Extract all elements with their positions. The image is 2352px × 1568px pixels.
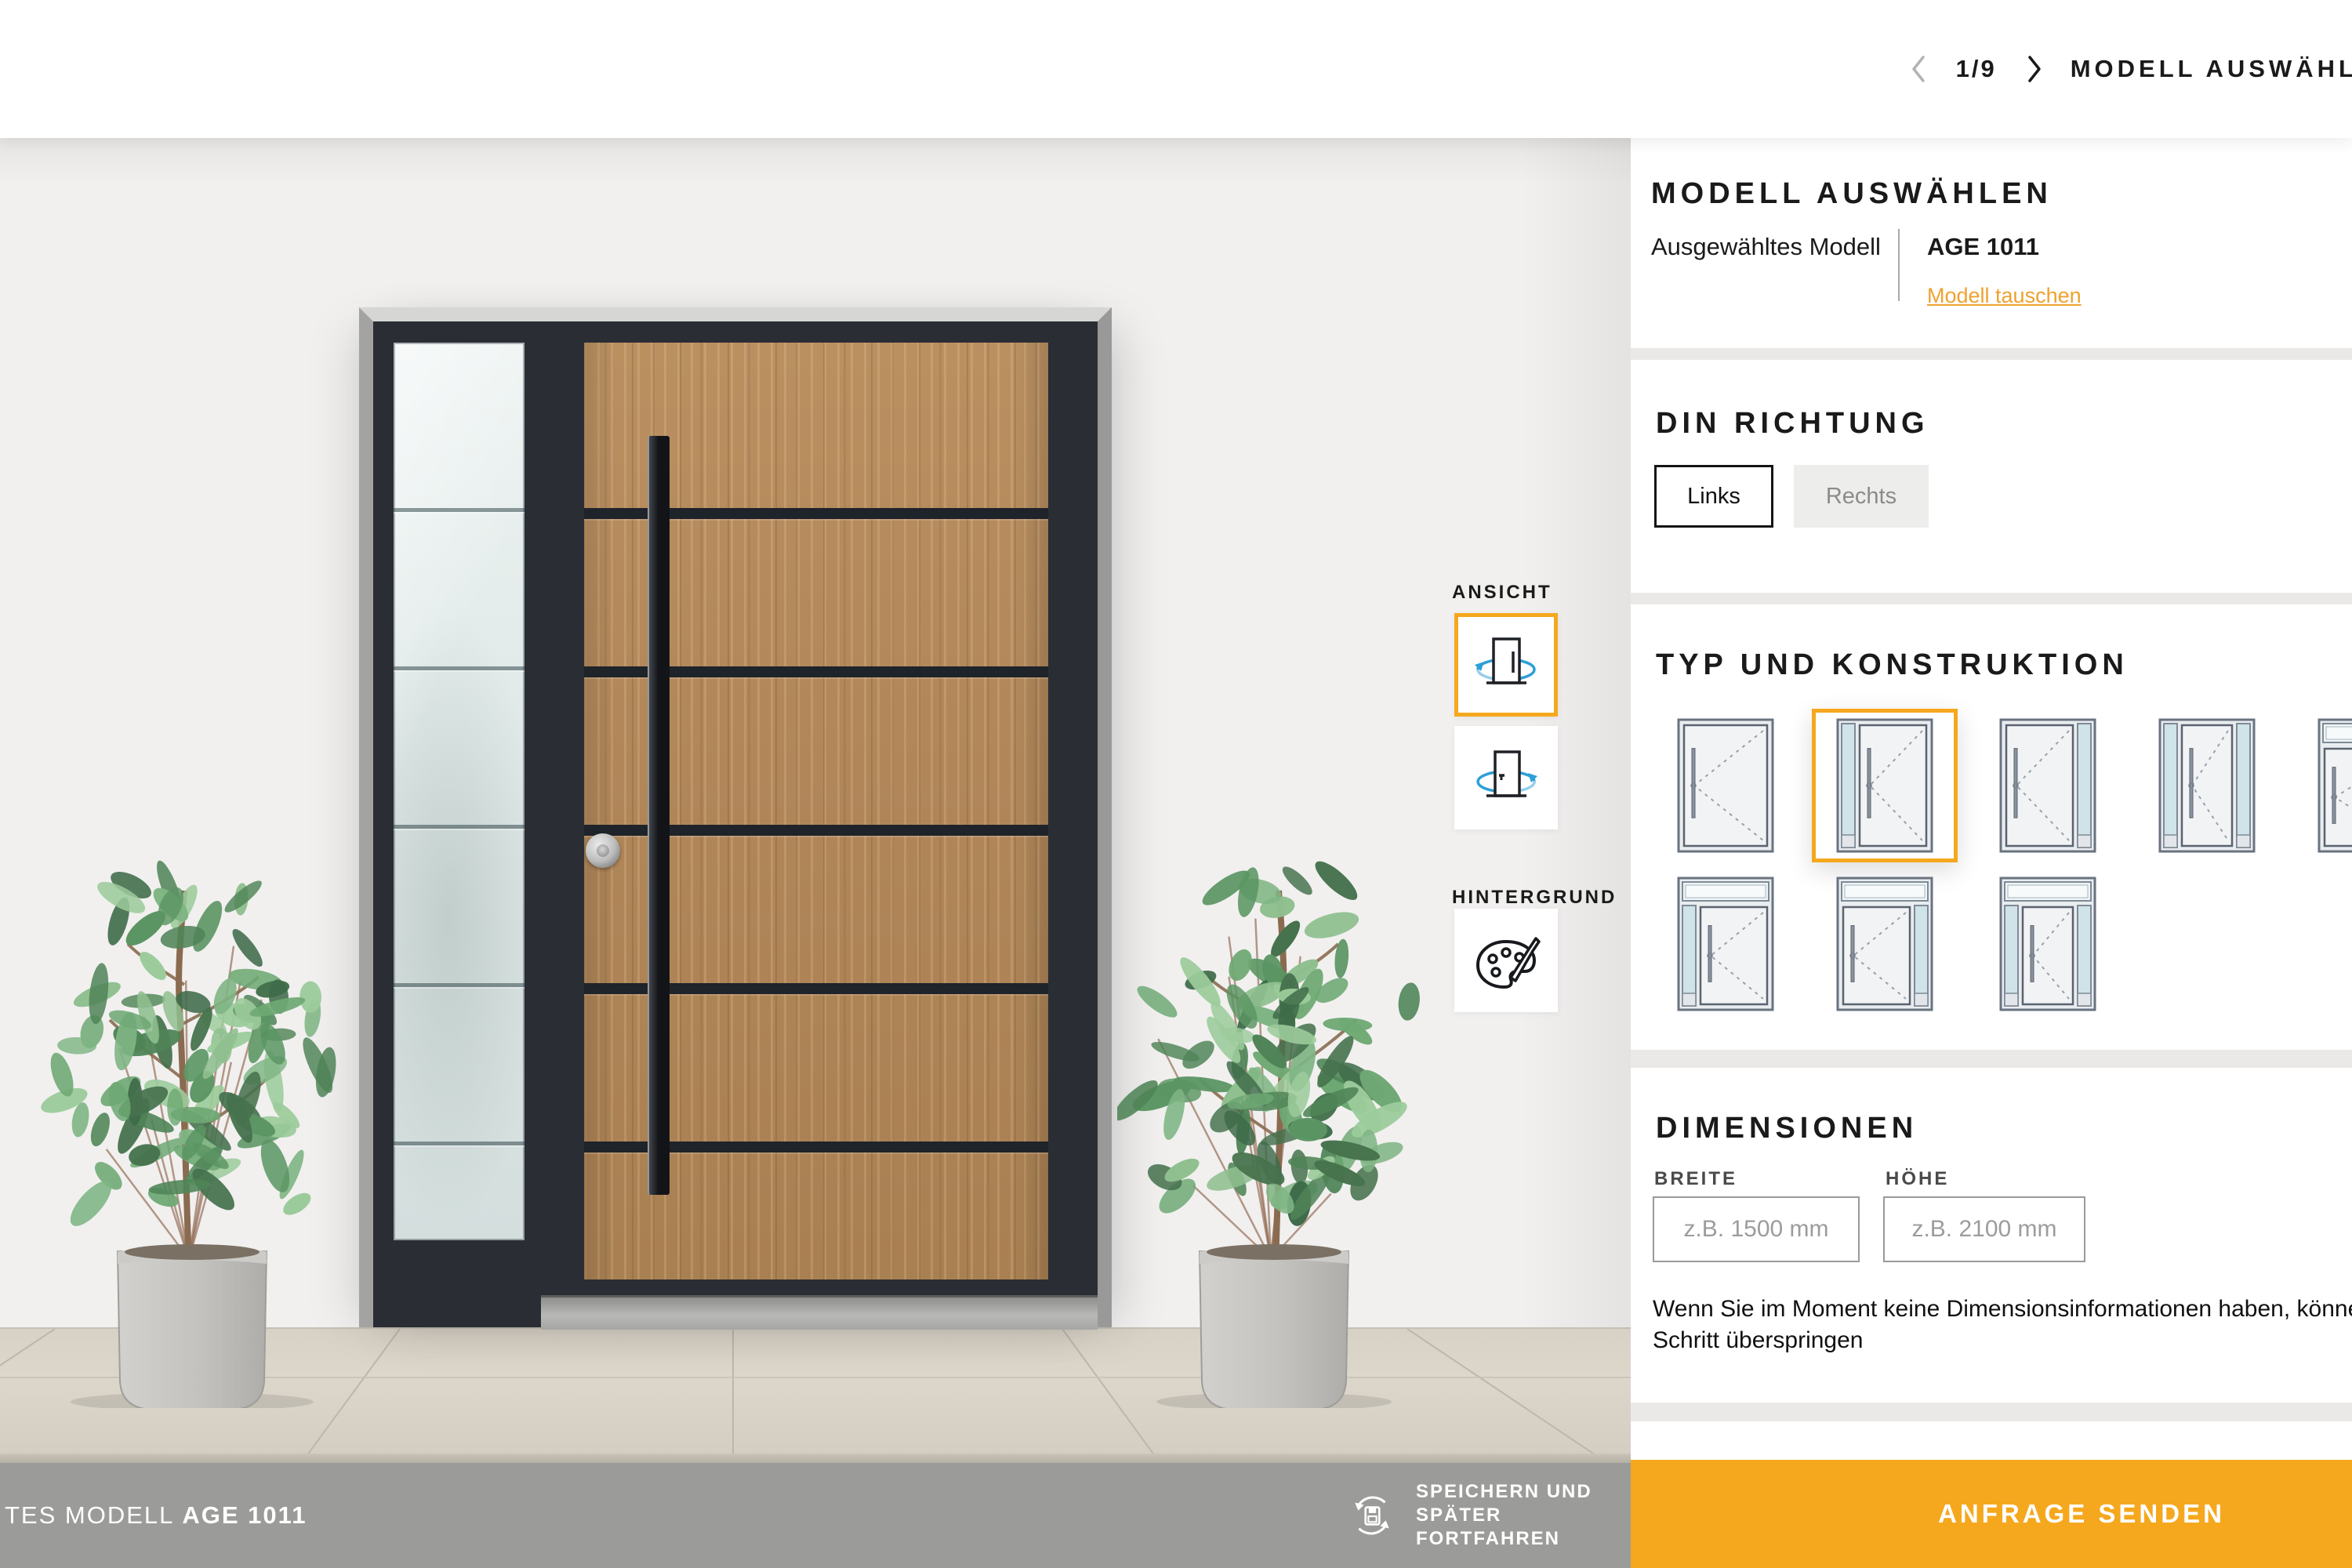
door-type-door-sidelight-right[interactable] — [1999, 718, 2096, 857]
height-label: HÖHE — [1886, 1168, 1949, 1190]
sidelight-mullion — [394, 666, 524, 670]
view-inside-button[interactable] — [1454, 726, 1558, 829]
view-outside-button[interactable] — [1454, 613, 1558, 717]
door-type-door-transom-sidelight-both[interactable] — [1999, 877, 2096, 1015]
door-type-door-transom-sidelight-right[interactable] — [1836, 877, 1933, 1015]
height-input[interactable] — [1883, 1196, 2085, 1262]
selected-model-badge: TES MODELL AGE 1011 — [5, 1463, 307, 1568]
plant-pot — [1200, 1244, 1348, 1408]
door-type-door-sidelight-both[interactable] — [2158, 718, 2256, 857]
lock-cylinder — [586, 833, 620, 868]
door-rotate-front-icon — [1467, 626, 1545, 704]
plant-right — [1117, 844, 1431, 1408]
selected-model-badge-name: AGE 1011 — [182, 1501, 307, 1530]
step-title: MODELL AUSWÄHLEN — [2071, 55, 2352, 83]
send-request-button[interactable]: ANFRAGE SENDEN — [1631, 1460, 2352, 1568]
selected-model-label: Ausgewähltes Modell — [1651, 233, 1881, 261]
divider — [1898, 229, 1900, 301]
background-section-label: HINTERGRUND — [1452, 887, 1617, 909]
palette-icon — [1467, 921, 1545, 1000]
dimensions-section-card: DIMENSIONEN BREITE HÖHE Wenn Sie im Mome… — [1631, 1068, 2352, 1403]
dimensions-note-line2: Schritt überspringen — [1653, 1325, 1863, 1356]
save-and-continue-later[interactable]: SPEICHERN UND SPÄTER FORTFAHREN — [1348, 1463, 1592, 1568]
change-model-link[interactable]: Modell tauschen — [1927, 284, 2082, 308]
door-type-grid — [1631, 604, 2352, 1050]
sidelight-mullion — [394, 825, 524, 829]
next-step-icon[interactable] — [2024, 52, 2044, 86]
sidelight-mullion — [394, 983, 524, 987]
sidelight-glass — [394, 343, 524, 1240]
plant-pot — [118, 1244, 267, 1408]
save-label-line1: SPEICHERN UND — [1416, 1480, 1592, 1504]
configuration-panel: MODELL AUSWÄHLEN Ausgewähltes Modell AGE… — [1631, 138, 2352, 1568]
sidelight-mullion — [394, 508, 524, 512]
selected-model-name: AGE 1011 — [1927, 233, 2039, 261]
save-label-line3: FORTFAHREN — [1416, 1527, 1592, 1551]
panel-bottom-card — [1631, 1421, 2352, 1460]
door-type-single-door[interactable] — [1677, 718, 1774, 857]
dimensions-section-title: DIMENSIONEN — [1656, 1112, 1918, 1145]
plant-left — [35, 844, 349, 1408]
door-type-door-transom-sidelight-left[interactable] — [1677, 877, 1774, 1015]
width-label: BREITE — [1654, 1168, 1737, 1190]
din-section-title: DIN RICHTUNG — [1656, 407, 1929, 441]
selected-model-badge-prefix: TES MODELL — [5, 1501, 174, 1530]
save-refresh-icon — [1348, 1492, 1396, 1539]
step-indicator: 1/9 — [1956, 55, 1997, 83]
model-section-card: MODELL AUSWÄHLEN Ausgewähltes Modell AGE… — [1631, 138, 2352, 348]
save-label-line2: SPÄTER — [1416, 1504, 1592, 1527]
din-section-card: DIN RICHTUNG LinksRechts — [1631, 360, 2352, 593]
width-input[interactable] — [1653, 1196, 1860, 1262]
view-section-label: ANSICHT — [1452, 582, 1552, 604]
send-request-label: ANFRAGE SENDEN — [1938, 1499, 2225, 1529]
model-section-title: MODELL AUSWÄHLEN — [1651, 177, 2053, 211]
din-direction-options: LinksRechts — [1654, 465, 1929, 528]
preview-footer-bar: TES MODELL AGE 1011 SPEICHERN UND SPÄTER… — [0, 1463, 1631, 1568]
door-handle-bar — [648, 436, 670, 1195]
sidelight-mullion — [394, 1142, 524, 1145]
type-section-card: TYP UND KONSTRUKTION — [1631, 604, 2352, 1050]
door-type-door-sidelight-left[interactable] — [1812, 709, 1958, 862]
door-rotate-back-icon — [1467, 739, 1545, 817]
door-preview-canvas: ANSICHT HINTERGRUND — [0, 138, 1631, 1568]
door-threshold — [541, 1295, 1098, 1330]
top-header: 1/9 MODELL AUSWÄHLEN — [0, 0, 2352, 138]
dimensions-note-line1: Wenn Sie im Moment keine Dimensionsinfor… — [1653, 1294, 2352, 1325]
din-option-links[interactable]: Links — [1654, 465, 1773, 528]
previous-step-icon[interactable] — [1909, 52, 1929, 86]
door-type-door-transom[interactable] — [2318, 718, 2352, 857]
din-option-rechts[interactable]: Rechts — [1794, 465, 1929, 528]
background-button[interactable] — [1454, 909, 1558, 1012]
door-leaf-wood — [584, 343, 1048, 1279]
door-assembly — [359, 307, 1112, 1327]
step-navigation: 1/9 MODELL AUSWÄHLEN — [1909, 0, 2352, 138]
